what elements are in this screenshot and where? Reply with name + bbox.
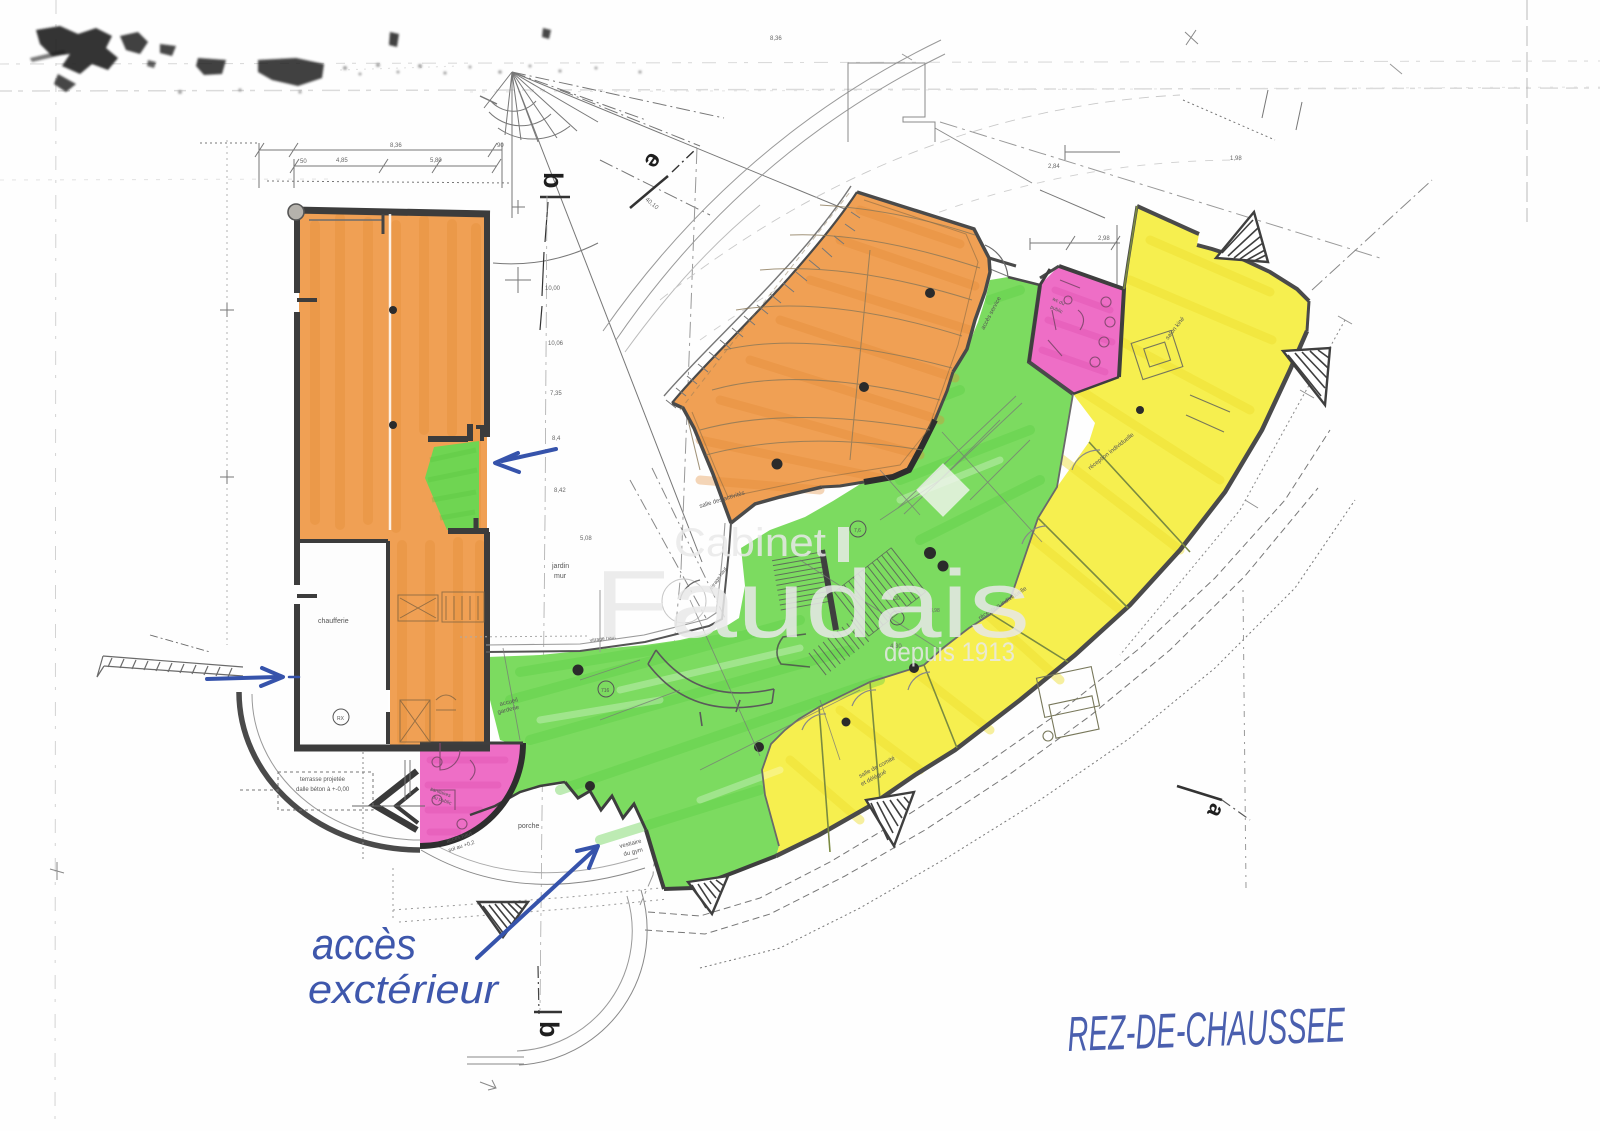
- svg-text:716: 716: [601, 688, 610, 694]
- svg-text:dalle béton à +-0,00: dalle béton à +-0,00: [296, 787, 350, 793]
- svg-text:5,80: 5,80: [430, 158, 442, 164]
- svg-text:10,00: 10,00: [545, 286, 561, 292]
- svg-text:RX: RX: [337, 716, 345, 722]
- svg-text:5,08: 5,08: [580, 536, 592, 542]
- svg-text:50: 50: [300, 159, 307, 165]
- svg-text:exctérieur: exctérieur: [308, 968, 500, 1012]
- svg-text:8,42: 8,42: [554, 488, 566, 494]
- svg-text:depuis 1913: depuis 1913: [884, 637, 1015, 667]
- svg-text:porche: porche: [518, 823, 540, 830]
- svg-text:7,6: 7,6: [854, 528, 861, 534]
- svg-text:chaufferie: chaufferie: [318, 618, 349, 625]
- svg-text:b: b: [538, 172, 568, 189]
- svg-text:mur: mur: [554, 573, 567, 580]
- svg-text:8,4: 8,4: [552, 436, 561, 442]
- svg-text:1,98: 1,98: [1230, 156, 1242, 162]
- svg-text:7,35: 7,35: [550, 391, 562, 397]
- svg-text:2,98: 2,98: [1098, 236, 1110, 242]
- svg-text:4,85: 4,85: [336, 158, 348, 164]
- svg-text:10,06: 10,06: [548, 341, 564, 347]
- svg-text:8,36: 8,36: [770, 36, 782, 42]
- svg-text:2,84: 2,84: [1048, 164, 1060, 170]
- svg-text:8,36: 8,36: [390, 143, 402, 149]
- svg-text:90: 90: [497, 143, 504, 149]
- svg-text:b: b: [534, 1021, 564, 1038]
- svg-text:accès: accès: [312, 920, 416, 969]
- svg-text:REZ-DE-CHAUSSEE: REZ-DE-CHAUSSEE: [1066, 998, 1346, 1062]
- svg-text:terrasse projetée: terrasse projetée: [300, 777, 346, 783]
- svg-text:jardin: jardin: [551, 563, 569, 570]
